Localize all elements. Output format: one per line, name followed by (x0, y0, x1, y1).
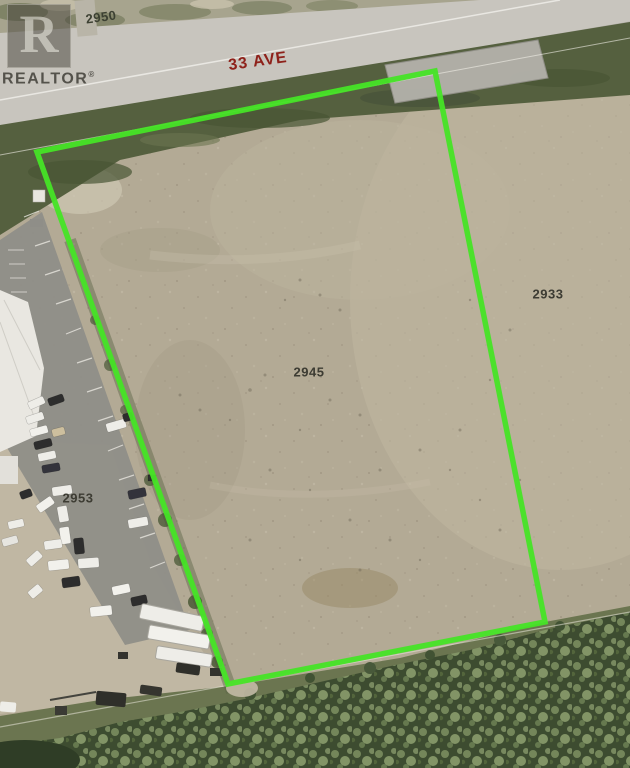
parcel-label-2953: 2953 (63, 491, 94, 506)
realtor-logo-box: R (7, 4, 71, 68)
parcel-label-2933: 2933 (533, 287, 564, 302)
aerial-map-scene (0, 0, 630, 768)
realtor-watermark: R REALTOR® (2, 4, 112, 88)
realtor-wordmark: REALTOR® (2, 70, 112, 88)
registered-trademark-symbol: ® (88, 70, 94, 79)
realtor-logo-r: R (20, 7, 59, 61)
realtor-wordmark-text: REALTOR (2, 70, 88, 87)
aerial-property-photo: 2950 33 AVE 2933 2945 2953 R REALTOR® (0, 0, 630, 768)
parcel-label-2945: 2945 (294, 365, 325, 380)
